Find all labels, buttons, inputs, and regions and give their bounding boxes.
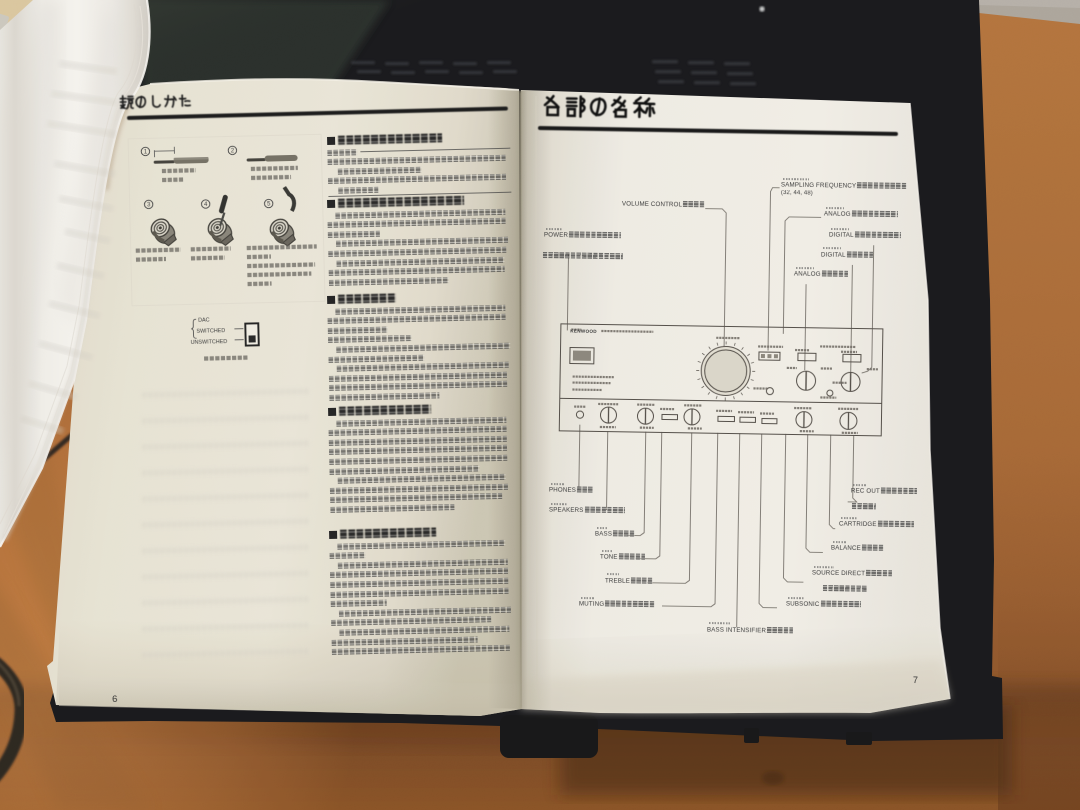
svg-text:DAC: DAC xyxy=(198,317,210,323)
svg-text:UNSWITCHED: UNSWITCHED xyxy=(191,339,228,346)
svg-text:KENWOOD: KENWOOD xyxy=(570,328,597,333)
svg-text:SWITCHED: SWITCHED xyxy=(196,328,225,335)
